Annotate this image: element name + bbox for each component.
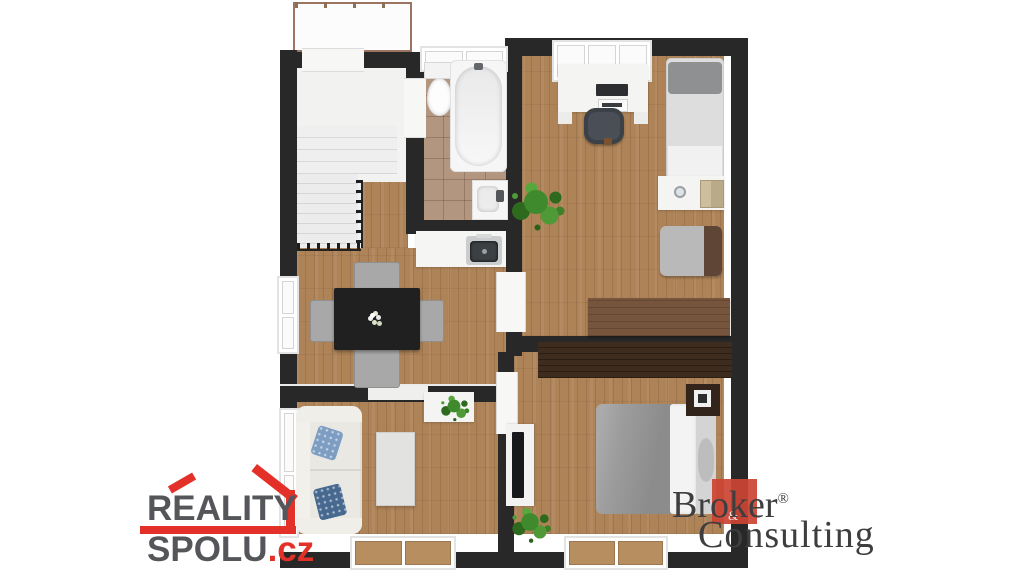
stair-railing (297, 243, 361, 251)
wall (731, 38, 748, 554)
broker-consulting-watermark: & Broker® Consulting (658, 478, 938, 573)
dining-chair (354, 348, 400, 388)
plant-icon (521, 513, 539, 531)
desk (634, 112, 648, 124)
armchair (704, 226, 722, 276)
logo-text-consulting: Consulting (698, 516, 875, 554)
study-door (496, 272, 526, 332)
stair-landing (297, 126, 397, 174)
sideboard (588, 298, 730, 336)
kitchen-sink-drain (482, 249, 487, 254)
dining-room-floor (362, 182, 408, 248)
table-centerpiece (370, 313, 375, 318)
sofa (296, 406, 362, 422)
bedroom-window (564, 536, 668, 570)
bathtub (455, 66, 502, 166)
books (700, 180, 724, 208)
computer-monitor (596, 84, 628, 96)
single-bed-pillow (668, 62, 722, 94)
registered-mark-icon: ® (778, 491, 789, 507)
dining-window (277, 276, 299, 354)
logo-text-cz: .cz (268, 530, 315, 569)
stair-railing (356, 180, 363, 248)
sink-faucet (496, 190, 504, 202)
dining-table (334, 288, 420, 350)
logo-text-reality: REALITY (147, 491, 297, 526)
double-bed-pillow (698, 438, 714, 482)
terrace (293, 2, 412, 52)
wardrobe (538, 342, 732, 378)
photo-frame (694, 390, 711, 407)
living-room-doorway (368, 386, 428, 400)
terrace-door (302, 48, 364, 72)
plant-icon (448, 400, 461, 413)
kitchen-faucet (476, 234, 492, 238)
single-bed-sheet (668, 146, 722, 180)
bathroom-door (404, 78, 426, 138)
toilet (427, 78, 452, 116)
floorplan-image: REALITY SPOLU.cz & Broker® Consulting (0, 0, 1024, 576)
logo-text-spolu-cz: SPOLU.cz (147, 532, 314, 567)
bathtub-faucet (474, 63, 483, 70)
logo-text-spolu: SPOLU (147, 530, 268, 569)
plant-icon (524, 190, 548, 214)
office-chair-detail (604, 138, 612, 145)
desk (558, 112, 572, 124)
glass (674, 186, 686, 198)
reality-spolu-watermark: REALITY SPOLU.cz (140, 440, 375, 576)
coffee-table (376, 432, 415, 506)
tv (512, 432, 524, 498)
stair-flight (297, 174, 358, 248)
